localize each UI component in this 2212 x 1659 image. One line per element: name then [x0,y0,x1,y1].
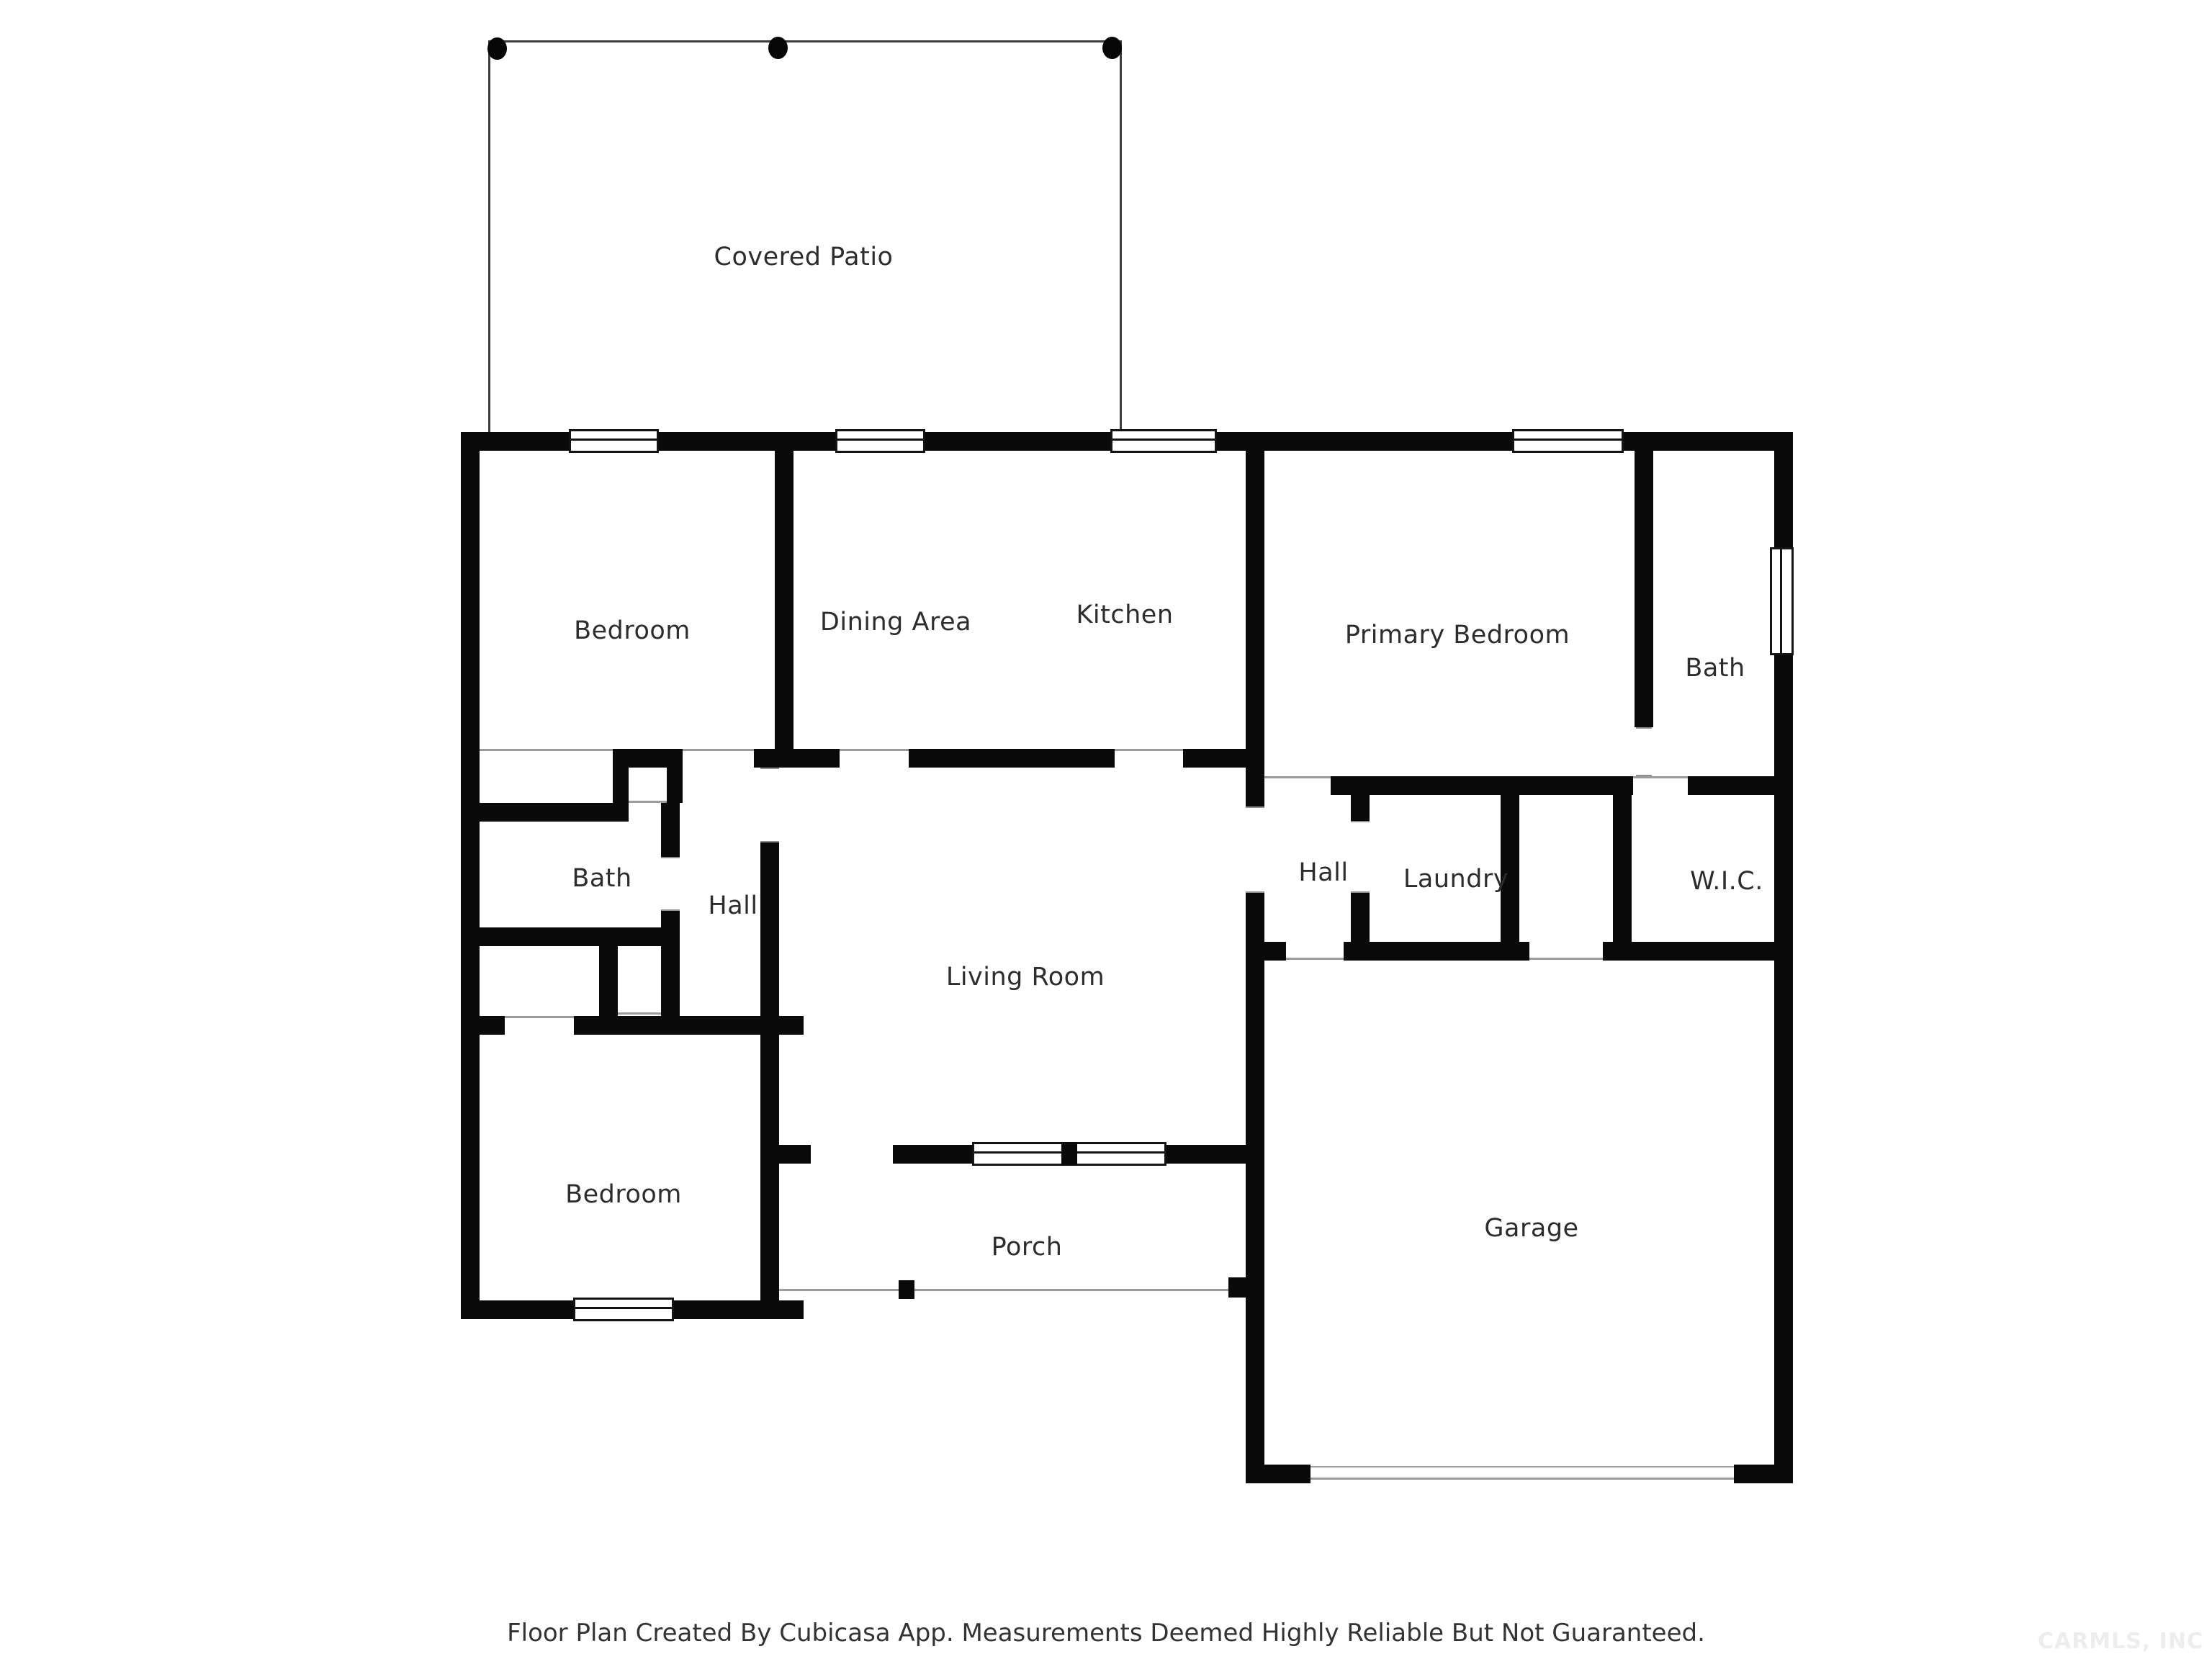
room-label-dining-area: Dining Area [820,608,971,637]
opening-line [1310,1466,1734,1467]
room-label-laundry: Laundry [1403,865,1509,894]
opening-line [480,749,613,751]
opening-line [1310,1478,1734,1480]
wall-segment [1734,1465,1793,1483]
patio-post-icon [768,37,788,59]
room-label-bath-right: Bath [1685,654,1745,683]
room-label-hall-left: Hall [708,891,757,920]
wall-segment [574,1016,804,1035]
wall-segment [1331,776,1633,795]
room-label-hall-right: Hall [1298,858,1348,887]
wall-segment [1603,942,1793,961]
wall-segment [760,1035,779,1319]
wall-segment [661,946,680,1016]
wall-segment [613,749,683,768]
opening-line [1286,958,1344,960]
wall-segment [599,946,618,1016]
opening-line [1529,958,1603,960]
window-pane-line [1112,439,1215,441]
opening-line [1264,776,1331,778]
window [1512,429,1624,453]
door-opening [1636,727,1652,776]
room-label-garage: Garage [1484,1214,1578,1243]
room-label-covered-patio: Covered Patio [714,243,894,271]
window [569,429,659,453]
wall-segment [1264,1465,1310,1483]
wall-segment [899,1280,914,1299]
door-opening [1246,806,1264,893]
room-label-wic: W.I.C. [1690,867,1763,896]
footer-disclaimer: Floor Plan Created By Cubicasa App. Meas… [0,1619,2212,1647]
wall-segment [775,432,793,749]
patio-post-icon [1102,37,1122,59]
wall-segment [1613,795,1632,942]
room-label-primary-bedroom: Primary Bedroom [1345,621,1570,649]
window-mullion [1061,1142,1077,1166]
wall-segment [661,803,680,857]
window [1110,429,1217,453]
wall-segment [1264,942,1286,961]
window [573,1298,674,1321]
wall-segment [480,927,680,946]
room-label-kitchen: Kitchen [1076,601,1173,629]
opening-line [1633,776,1688,778]
room-label-porch: Porch [992,1233,1063,1262]
wall-segment [613,768,629,803]
wall-segment [480,803,629,822]
window-pane-line [1780,549,1782,653]
window-pane-line [571,439,657,441]
wall-segment [779,1145,811,1164]
room-label-bedroom-top: Bedroom [574,616,691,645]
door-opening [1351,821,1370,893]
room-label-bath-left: Bath [572,864,631,893]
wall-segment [667,768,683,803]
wall-segment [480,1016,505,1035]
opening-line [683,749,754,751]
window [1770,547,1794,655]
covered-patio-outline [488,40,1122,441]
room-label-living-room: Living Room [946,963,1105,992]
opening-line [840,749,909,751]
wall-segment [893,1145,972,1164]
opening-line [777,1289,1246,1291]
window-pane-line [1514,439,1622,441]
wall-segment [1688,776,1774,795]
wall-segment [1228,1277,1246,1298]
door-opening [760,768,779,842]
wall-segment [760,842,779,1035]
opening-line [1115,749,1183,751]
wall-segment [1246,432,1264,778]
wall-segment [1166,1145,1246,1164]
room-label-bedroom-bottom: Bedroom [565,1180,682,1209]
wall-segment [754,749,840,768]
wall-segment [1246,778,1264,806]
wall-segment [1351,795,1370,821]
opening-line [618,1012,661,1015]
wall-segment [909,749,1115,768]
window [835,429,925,453]
wall-segment [1635,432,1653,727]
wall-segment [461,432,480,1319]
floor-plan-canvas: Covered Patio Bedroom Dining Area Kitche… [0,0,2212,1659]
patio-post-icon [487,37,507,60]
door-opening [661,857,680,911]
watermark-text: CARMLS, INC [2016,1629,2203,1654]
wall-segment [1246,893,1264,1483]
wall-segment [1344,942,1529,961]
window-pane-line [575,1307,672,1309]
opening-line [505,1016,574,1018]
window-pane-line [837,439,923,441]
wall-segment [1351,893,1370,942]
